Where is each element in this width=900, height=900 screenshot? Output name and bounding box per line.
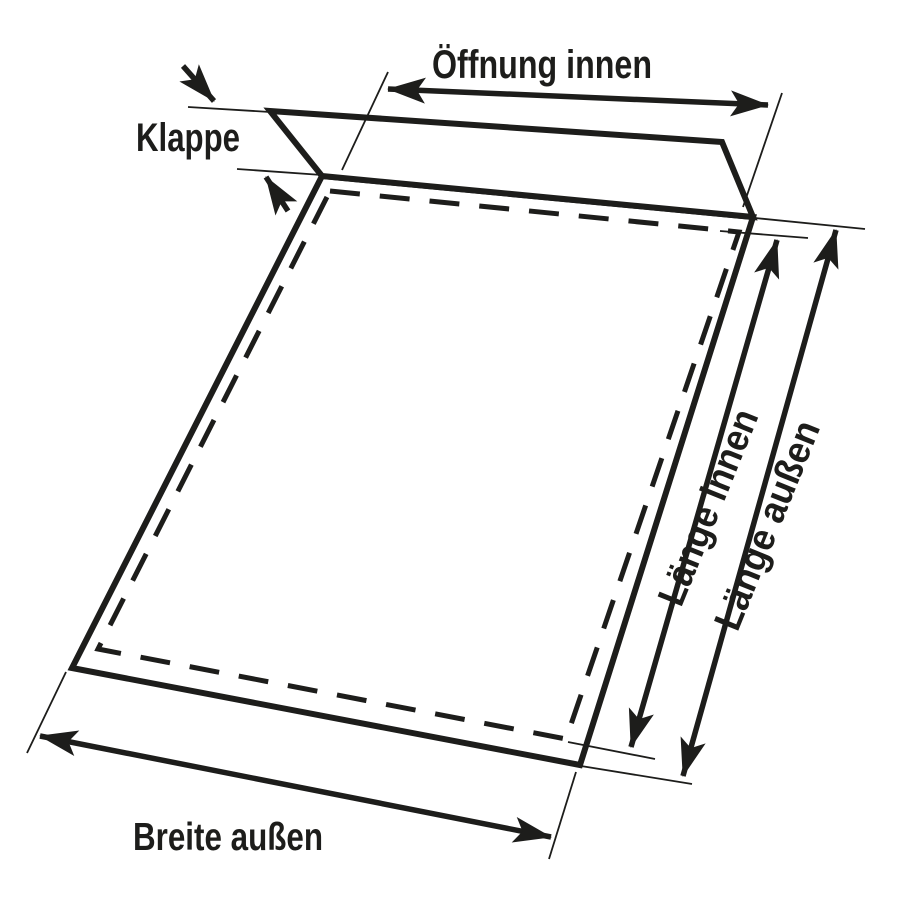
oeffnung-innen-dimension-arrow [388,89,768,105]
klappe-extension-line-bottom [237,169,322,175]
laenge-aussen-extension-line-bottom [581,766,692,784]
diagram-canvas: Öffnung innen Klappe Länge innen Länge a… [0,0,900,900]
breite-aussen-extension-line-right [549,772,576,859]
label-breite-aussen: Breite außen [133,816,323,859]
klappe-arrow-upper [183,66,214,101]
label-oeffnung-innen: Öffnung innen [432,42,652,87]
klappe-extension-line-top [188,107,270,112]
envelope-dimension-diagram: Öffnung innen Klappe Länge innen Länge a… [0,0,900,900]
oeffnung-innen-extension-line-right [743,93,782,207]
laenge-aussen-extension-line-top [755,218,865,229]
klappe-arrow-lower [266,177,288,211]
label-klappe: Klappe [136,116,240,160]
